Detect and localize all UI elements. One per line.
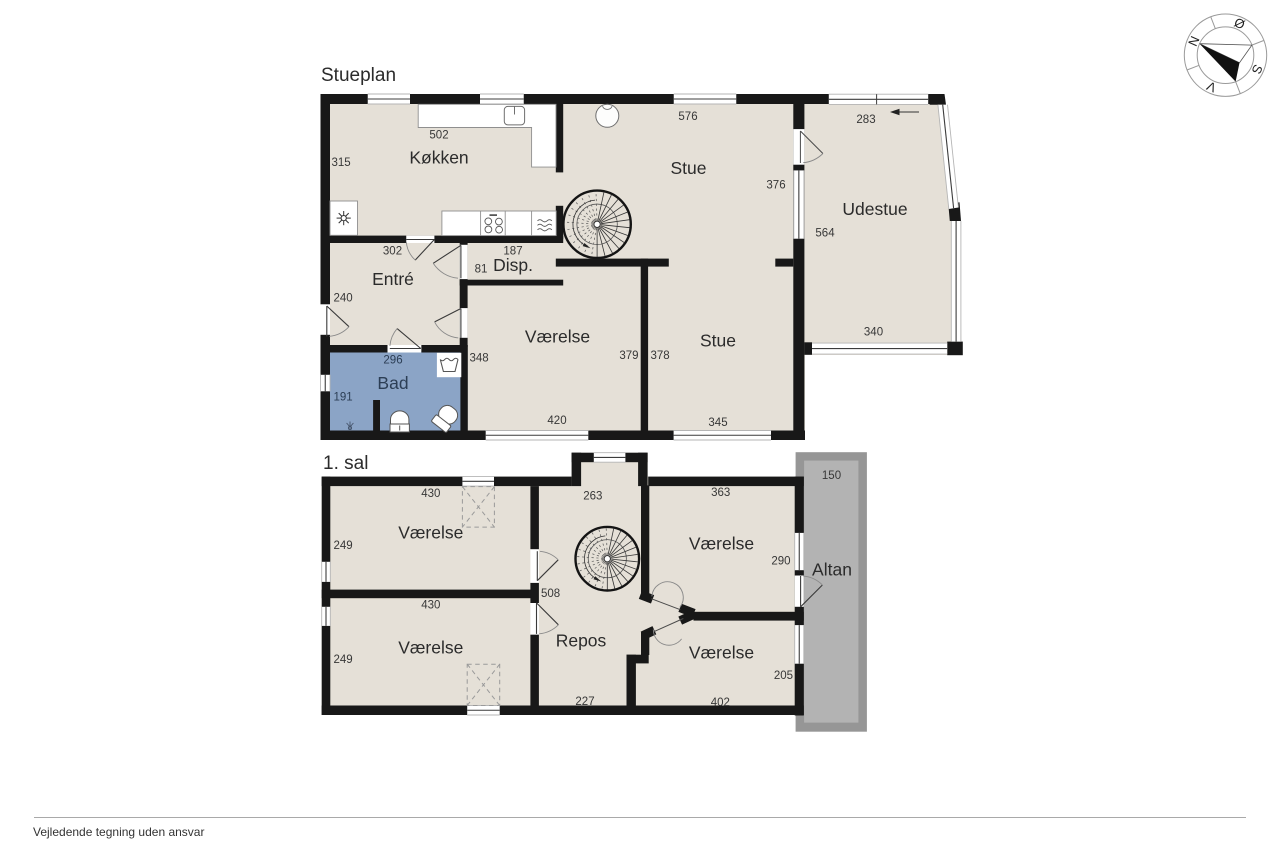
svg-text:81: 81	[475, 264, 488, 276]
svg-text:302: 302	[383, 246, 402, 258]
svg-text:Værelse: Værelse	[689, 643, 754, 663]
svg-text:187: 187	[503, 246, 522, 258]
svg-text:430: 430	[421, 600, 440, 612]
svg-text:502: 502	[429, 130, 448, 142]
svg-text:376: 376	[766, 180, 785, 192]
svg-text:Stue: Stue	[671, 158, 707, 178]
svg-text:227: 227	[575, 696, 594, 708]
svg-text:Stue: Stue	[700, 331, 736, 351]
svg-text:Altan: Altan	[812, 560, 852, 580]
svg-text:191: 191	[334, 392, 353, 404]
svg-text:296: 296	[383, 355, 402, 367]
svg-text:Repos: Repos	[556, 631, 607, 651]
svg-text:576: 576	[678, 111, 697, 123]
svg-text:249: 249	[334, 540, 353, 552]
svg-text:340: 340	[864, 327, 883, 339]
svg-text:564: 564	[815, 228, 835, 240]
svg-text:Værelse: Værelse	[398, 638, 463, 658]
svg-text:Disp.: Disp.	[493, 255, 533, 275]
svg-text:345: 345	[708, 417, 727, 429]
svg-text:249: 249	[334, 654, 353, 666]
svg-text:Værelse: Værelse	[689, 534, 754, 554]
svg-text:315: 315	[332, 157, 351, 169]
svg-text:430: 430	[421, 488, 440, 500]
svg-text:290: 290	[771, 556, 790, 568]
svg-text:Entré: Entré	[372, 269, 414, 289]
svg-text:Værelse: Værelse	[525, 327, 590, 347]
svg-text:150: 150	[822, 470, 841, 482]
svg-text:348: 348	[470, 353, 489, 365]
svg-text:420: 420	[547, 415, 566, 427]
svg-text:Udestue: Udestue	[842, 199, 907, 219]
svg-text:240: 240	[334, 293, 353, 305]
svg-text:402: 402	[711, 697, 730, 709]
svg-text:Vejledende tegning uden ansvar: Vejledende tegning uden ansvar	[33, 825, 204, 839]
svg-text:1. sal: 1. sal	[323, 453, 368, 474]
svg-text:363: 363	[711, 487, 730, 499]
svg-text:205: 205	[774, 670, 793, 682]
svg-text:263: 263	[583, 491, 602, 503]
svg-text:379: 379	[619, 350, 638, 362]
svg-text:378: 378	[651, 350, 670, 362]
svg-text:Stueplan: Stueplan	[321, 65, 396, 86]
svg-text:283: 283	[856, 114, 875, 126]
svg-text:Bad: Bad	[377, 373, 408, 393]
svg-text:Værelse: Værelse	[398, 523, 463, 543]
svg-text:Køkken: Køkken	[409, 148, 468, 168]
svg-text:508: 508	[541, 588, 560, 600]
